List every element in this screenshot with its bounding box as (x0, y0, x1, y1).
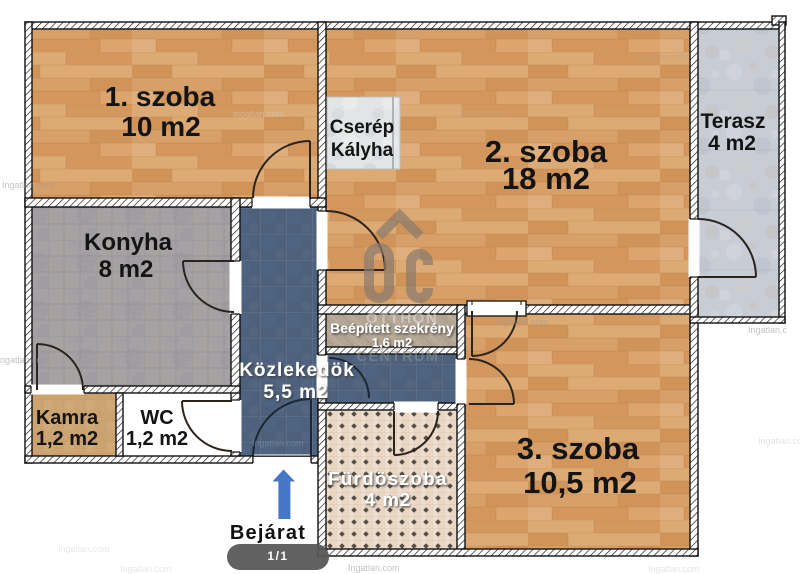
svg-text:Kamra: Kamra (36, 407, 99, 429)
svg-text:Terasz: Terasz (701, 110, 766, 133)
svg-text:5,5 m2: 5,5 m2 (263, 382, 328, 403)
svg-text:Ingatlan.com: Ingatlan.com (252, 438, 304, 448)
svg-text:Cserép: Cserép (330, 117, 394, 138)
svg-text:Ingatlan.com: Ingatlan.com (648, 564, 700, 574)
svg-text:ingatlan.com: ingatlan.com (455, 108, 506, 118)
svg-text:Ingatlan.com: Ingatlan.com (758, 436, 800, 446)
svg-text:1,2 m2: 1,2 m2 (36, 428, 98, 450)
svg-text:Kályha: Kályha (331, 140, 394, 161)
svg-text:Ingatlan.com: Ingatlan.com (348, 563, 400, 573)
svg-text:1/1: 1/1 (267, 549, 288, 563)
svg-text:Beépített szekrény: Beépített szekrény (330, 320, 454, 336)
svg-text:1,6 m2: 1,6 m2 (372, 335, 412, 350)
svg-text:10 m2: 10 m2 (121, 111, 200, 142)
svg-text:ngatlan.com: ngatlan.com (0, 355, 49, 365)
svg-text:4 m2: 4 m2 (708, 132, 756, 155)
svg-text:Fürdöszoba: Fürdöszoba (328, 468, 448, 489)
svg-text:18 m2: 18 m2 (502, 161, 590, 196)
svg-text:3. szoba: 3. szoba (517, 431, 640, 466)
svg-text:Ingatlan.com: Ingatlan.com (120, 564, 172, 574)
svg-text:Konyha: Konyha (84, 229, 173, 256)
svg-text:ingatlan.com: ingatlan.com (638, 52, 689, 62)
svg-text:CENTRUM: CENTRUM (357, 349, 440, 365)
svg-text:Ingatlan.com: Ingatlan.com (2, 180, 54, 190)
svg-text:10,5 m2: 10,5 m2 (523, 465, 637, 500)
svg-text:ingatlan.com: ingatlan.com (233, 109, 284, 119)
svg-text:1. szoba: 1. szoba (105, 81, 216, 112)
svg-text:ingatlan.com: ingatlan.com (497, 317, 548, 327)
svg-text:Ingatlan.com: Ingatlan.com (58, 544, 110, 554)
svg-text:WC: WC (140, 407, 173, 429)
svg-text:ingatlan.com: ingatlan.com (634, 309, 685, 319)
svg-text:4 m2: 4 m2 (365, 489, 411, 510)
svg-text:Bejárat: Bejárat (230, 522, 306, 544)
svg-text:Ingatlan.c: Ingatlan.c (748, 325, 788, 335)
svg-text:Közlekedök: Közlekedök (239, 360, 355, 381)
svg-text:8 m2: 8 m2 (99, 256, 154, 283)
svg-text:1,2 m2: 1,2 m2 (126, 428, 188, 450)
